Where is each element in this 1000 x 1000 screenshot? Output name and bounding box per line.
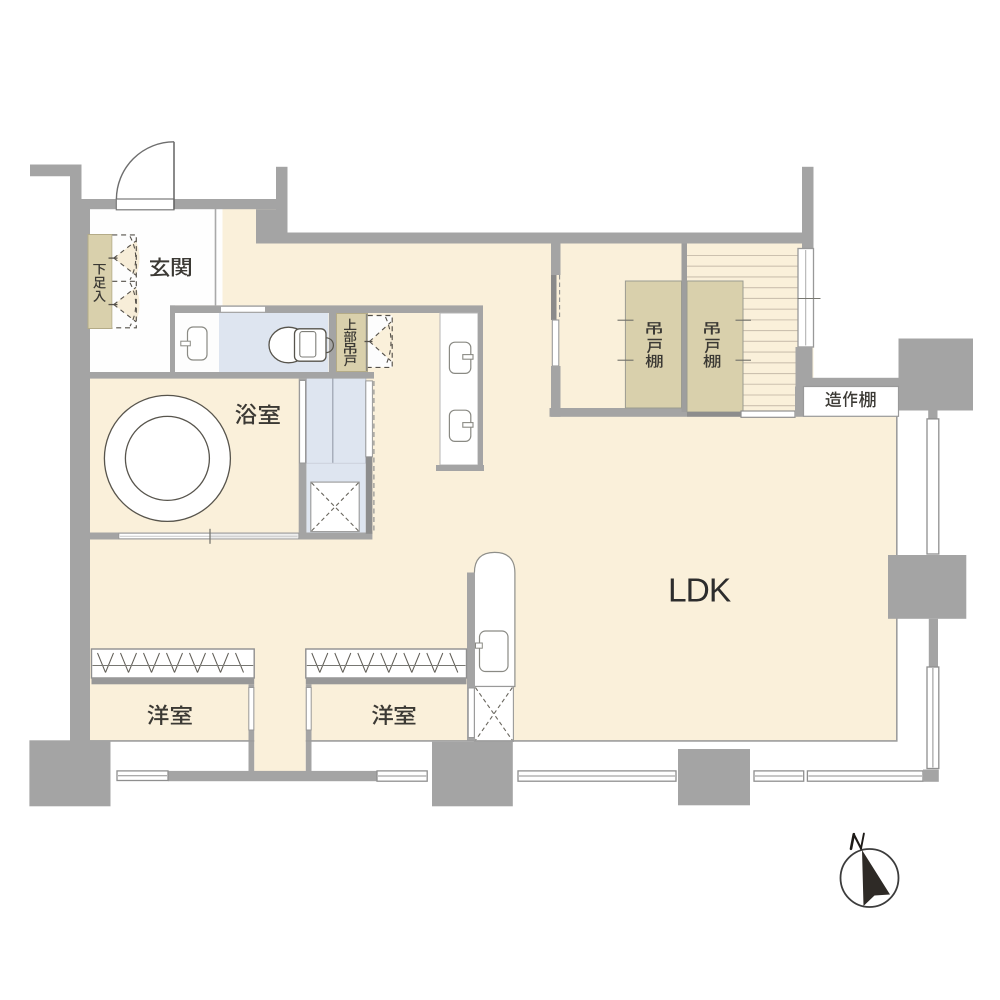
svg-text:LDK: LDK (668, 573, 731, 610)
